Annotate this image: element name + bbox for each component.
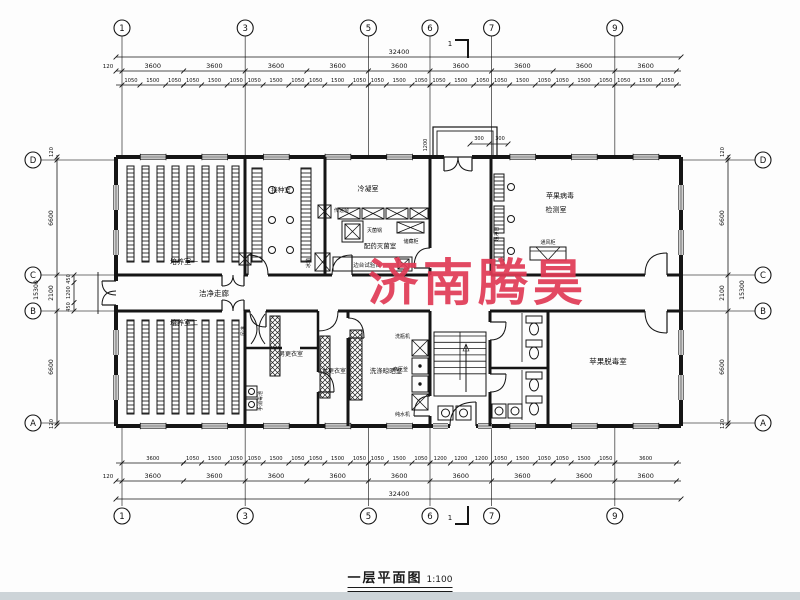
dim-text: 1500 [269,78,282,84]
dim-text: 2100 [719,285,726,301]
dim-text: 1500 [393,456,406,462]
dim-text: 120 [720,147,726,157]
dim-text: 1500 [146,78,159,84]
dim-text: 1500 [208,456,221,462]
dim-text: 1050 [309,456,322,462]
dim-text: 3600 [146,456,159,462]
label-pass-window: 传递窗 [334,207,349,214]
dim-text: 15300 [739,280,746,300]
label-condensing: 冷凝室 [358,184,379,193]
label-hand-wash: 手消毒池 [257,391,264,411]
axis-label-top: 6 [427,24,432,34]
dim-text: 1050 [371,78,384,84]
label-sterilizer: 灭菌锅 [367,227,382,234]
drawing-scale: 1:100 [427,575,453,585]
dim-text: 1050 [617,78,630,84]
axis-label-top: 7 [489,24,494,34]
axis-label-bottom: 1 [119,512,124,522]
dim-text: 3600 [453,62,470,70]
floor-plan-page: 113355667799DDCCBBAA32400360036003600360… [0,0,800,600]
label-fume-hood: 通风柜 [540,239,555,246]
dim-text: 1500 [269,456,282,462]
label-culture1: 培养室一 [170,257,198,266]
dim-text: 3600 [514,472,531,480]
dim-text: 32400 [389,48,410,56]
axis-label-left: D [30,156,37,166]
dim-text: 1200 [454,456,467,462]
dim-text: 3600 [637,472,654,480]
label-autoclave: 高压釜 [393,366,408,373]
dim-text: 3600 [145,62,162,70]
dim-text: 1500 [331,456,344,462]
dim-text: 300 [474,136,484,142]
axis-label-bottom: 7 [489,512,494,522]
dim-text: 1500 [454,78,467,84]
dim-text: 1050 [414,456,427,462]
label-fridge: 冰箱 [305,258,312,268]
axis-label-bottom: 9 [612,512,617,522]
dim-text: 1050 [230,78,243,84]
dim-text: 450 [66,274,72,284]
label-clean-bench: 超净台 [493,226,500,241]
section-mark-label: 1 [448,514,452,522]
dim-text: 120 [720,419,726,429]
dim-text: 3600 [576,472,593,480]
dim-text: 1500 [577,78,590,84]
section-mark-label: 1 [448,40,452,48]
label-men-changing: 男更衣室 [279,350,303,358]
dim-text: 300 [495,136,505,142]
dim-text: 1050 [494,78,507,84]
dim-text: 3600 [329,62,346,70]
dim-text: 1050 [168,78,181,84]
label-inoculation: 接种室 [271,185,291,194]
dim-text: 1050 [414,78,427,84]
dim-text: 1050 [291,78,304,84]
dim-text: 1050 [556,456,569,462]
label-detox: 苹果脱毒室 [589,356,627,366]
axis-label-top: 1 [119,24,124,34]
dim-text: 3600 [637,62,654,70]
dim-text: 15300 [33,280,40,300]
dim-text: 6600 [719,359,726,375]
label-side-bench: 边台试验台 [353,261,381,269]
axis-label-right: D [760,156,767,166]
dim-text: 450 [66,302,72,312]
dim-text: 1050 [291,456,304,462]
axis-label-left: C [30,271,36,281]
dim-text: 1050 [432,78,445,84]
dim-text: 6600 [719,210,726,226]
axis-label-right: A [760,419,766,429]
dim-text: 3600 [206,472,223,480]
dim-text: 1200 [475,456,488,462]
axis-label-left: A [30,419,36,429]
dim-text: 1050 [476,78,489,84]
dim-text: 120 [103,64,114,70]
dim-text: 1050 [186,78,199,84]
dim-text: 1050 [353,78,366,84]
dim-text: 3600 [391,472,408,480]
dim-text: 1500 [331,78,344,84]
axis-label-bottom: 3 [242,512,247,522]
dim-text: 120 [103,474,114,480]
dim-text: 1050 [353,456,366,462]
dim-text: 1500 [577,456,590,462]
dim-text: 1050 [124,78,137,84]
dim-text: 3600 [329,472,346,480]
label-storage-cabinet: 储藏柜 [403,238,418,245]
dim-text: 3600 [145,472,162,480]
axis-label-right: B [760,307,766,317]
dim-text: 3600 [391,62,408,70]
dim-text: 3600 [453,472,470,480]
label-detection-line1: 苹果病毒 [546,191,574,200]
dim-text: 1050 [186,456,199,462]
drawing-title: 一层平面图 [348,571,423,586]
dim-text: 3600 [268,472,285,480]
dim-text: 3600 [576,62,593,70]
label-women-changing: 女更衣室 [322,367,346,375]
label-clean-corridor: 洁净走廊 [199,288,229,298]
dim-text: 1500 [516,456,529,462]
axis-label-top: 3 [242,24,247,34]
dim-text: 1050 [494,456,507,462]
dim-text: 1050 [538,78,551,84]
dim-text: 1200 [434,456,447,462]
axis-label-right: C [760,271,766,281]
footer-bar [0,592,800,600]
label-detection-line2: 检测室 [546,205,567,214]
dim-text: 1050 [230,456,243,462]
dim-text: 1050 [538,456,551,462]
dim-text: 1050 [599,456,612,462]
dim-text: 3600 [268,62,285,70]
dim-text: 1050 [309,78,322,84]
dim-text: 1500 [516,78,529,84]
drawing-title-block: 一层平面图1:100 [348,567,453,593]
dim-text: 1050 [248,78,261,84]
dim-text: 1050 [661,78,674,84]
dim-text: 2100 [48,285,55,301]
axis-label-top: 5 [366,24,371,34]
label-water-purifier: 纯水机 [395,411,410,418]
axis-label-bottom: 6 [427,512,432,522]
dim-text: 32400 [389,490,410,498]
dim-text: 1200 [423,139,429,152]
label-prep-steril: 配药灭菌室 [364,241,397,250]
dim-text: 120 [49,419,55,429]
label-culture2: 培养室二 [170,318,198,327]
dim-text: 1500 [639,78,652,84]
axis-label-left: B [30,307,36,317]
dim-text: 3600 [514,62,531,70]
dim-text: 1050 [371,456,384,462]
label-bottle-washer: 洗瓶机 [395,333,410,340]
dim-text: 1500 [208,78,221,84]
dim-text: 1050 [248,456,261,462]
dim-text: 1500 [393,78,406,84]
dim-text: 120 [49,147,55,157]
label-air-shower: 风淋 [240,326,247,336]
dim-text: 6600 [48,359,55,375]
dim-text: 6600 [48,210,55,226]
dim-text: 3600 [639,456,652,462]
dim-text: 1050 [556,78,569,84]
dim-text: 1200 [66,286,72,299]
dim-text: 1050 [599,78,612,84]
axis-label-bottom: 5 [366,512,371,522]
floor-plan-drawing: 113355667799DDCCBBAA32400360036003600360… [0,0,800,600]
dim-text: 3600 [206,62,223,70]
axis-label-top: 9 [612,24,617,34]
